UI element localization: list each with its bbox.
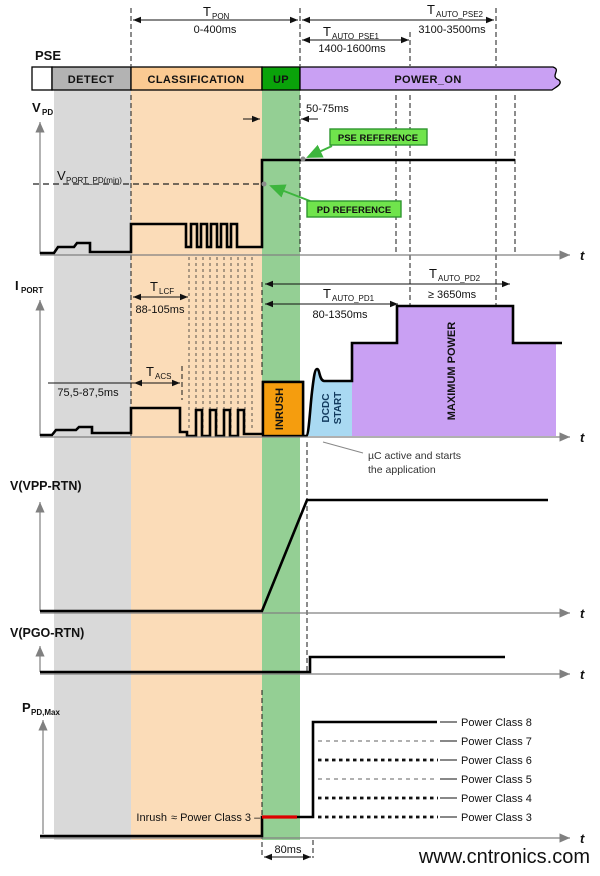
pse-bar-power-on-label: POWER_ON (394, 74, 461, 86)
inrush-approx-label-red: Inrush (136, 812, 167, 824)
t-lcf-label: T (150, 279, 158, 294)
ppd-t-axis-label: t (580, 831, 585, 846)
pse-bar-idle-segment (32, 67, 52, 90)
vpd-t-axis-label: t (580, 248, 585, 263)
t50-value: 50-75ms (306, 103, 349, 115)
t80-value: 80ms (275, 844, 302, 856)
pse-reference-dot (301, 157, 306, 162)
inrush-approx-label-black: ≈ Power Class 3 – (171, 812, 261, 824)
vvpp-t-axis-label: t (580, 606, 585, 621)
t-auto-pse2-sub: AUTO_PSE2 (436, 10, 484, 19)
iport-axis-label: I (15, 278, 19, 293)
pse-reference-arrow (308, 146, 332, 157)
t-auto-pse2-label: T (427, 2, 435, 17)
power-class-7-label: Power Class 7 (461, 736, 532, 748)
band-classification (131, 90, 262, 840)
t-auto-pd2-sub: AUTO_PD2 (438, 274, 481, 283)
pse-bar-classification-label: CLASSIFICATION (147, 74, 244, 86)
band-detect (54, 90, 131, 840)
vpgo-label: V(PGO-RTN) (10, 626, 84, 640)
t-pon-label: T (203, 4, 211, 19)
power-class-7-5-lines (318, 741, 438, 779)
t-acs-value: 75,5-87,5ms (57, 387, 119, 399)
t-auto-pd2-label: T (429, 266, 437, 281)
pse-state-bar: DETECT CLASSIFICATION UP POWER_ON (32, 67, 560, 90)
t-acs-label: T (146, 364, 154, 379)
watermark: www.cntronics.com (418, 846, 590, 868)
power-class-3-label: Power Class 3 (461, 812, 532, 824)
uc-note-line1: µC active and starts (368, 450, 461, 462)
power-class-4-label: Power Class 4 (461, 793, 532, 805)
t-lcf-value: 88-105ms (136, 304, 185, 316)
t-auto-pse1-sub: AUTO_PSE1 (332, 32, 380, 41)
vpgo-t-axis-label: t (580, 667, 585, 682)
t-auto-pse1-label: T (323, 24, 331, 39)
t-auto-pd2-value: ≥ 3650ms (428, 289, 477, 301)
t-auto-pse2-value: 3100-3500ms (418, 24, 486, 36)
vpd-axis-sub: PD (42, 108, 53, 117)
iport-t-axis-label: t (580, 430, 585, 445)
max-power-label: MAXIMUM POWER (446, 322, 458, 420)
uc-note-line2: the application (368, 464, 436, 476)
pse-bar-detect-label: DETECT (68, 74, 114, 86)
dcdc-label-line2: START (333, 392, 344, 425)
t-auto-pd1-value: 80-1350ms (312, 309, 368, 321)
dcdc-label-line1: DCDC (321, 394, 332, 423)
band-up (262, 90, 300, 840)
t-auto-pd1-sub: AUTO_PD1 (332, 294, 375, 303)
power-class-6-label: Power Class 6 (461, 755, 532, 767)
t-acs-sub: ACS (155, 372, 171, 381)
pd-reference-dot (262, 182, 267, 187)
iport-axis-sub: PORT (21, 286, 43, 295)
vpd-axis-label: V (32, 100, 41, 115)
t-pon-value: 0-400ms (194, 24, 237, 36)
t-pon-sub: PON (212, 12, 230, 21)
pse-reference-label: PSE REFERENCE (338, 133, 418, 144)
uc-note-pointer (323, 442, 363, 453)
ppd-axis-sub: PD,Max (31, 708, 60, 717)
vport-pd-min-label: V (57, 168, 66, 183)
diagram-canvas: T PON 0-400ms T AUTO_PSE2 3100-3500ms T … (0, 0, 600, 871)
ppd-axis-label: P (22, 700, 31, 715)
t-auto-pse1-value: 1400-1600ms (318, 43, 386, 55)
vport-pd-min-sub: PORT_PD(min) (66, 176, 122, 185)
t-lcf-sub: LCF (159, 287, 174, 296)
power-class-6-4-3-lines (318, 760, 438, 817)
power-class-5-label: Power Class 5 (461, 774, 532, 786)
pse-bar-up-label: UP (273, 74, 289, 86)
poe-timing-diagram: T PON 0-400ms T AUTO_PSE2 3100-3500ms T … (0, 0, 600, 871)
pse-label: PSE (35, 48, 61, 63)
inrush-label: INRUSH (274, 388, 286, 430)
t-auto-pd1-label: T (323, 286, 331, 301)
vvpp-label: V(VPP-RTN) (10, 479, 82, 493)
power-class-8-label: Power Class 8 (461, 717, 532, 729)
pd-reference-label: PD REFERENCE (317, 205, 391, 216)
power-class-connectors (440, 722, 457, 817)
